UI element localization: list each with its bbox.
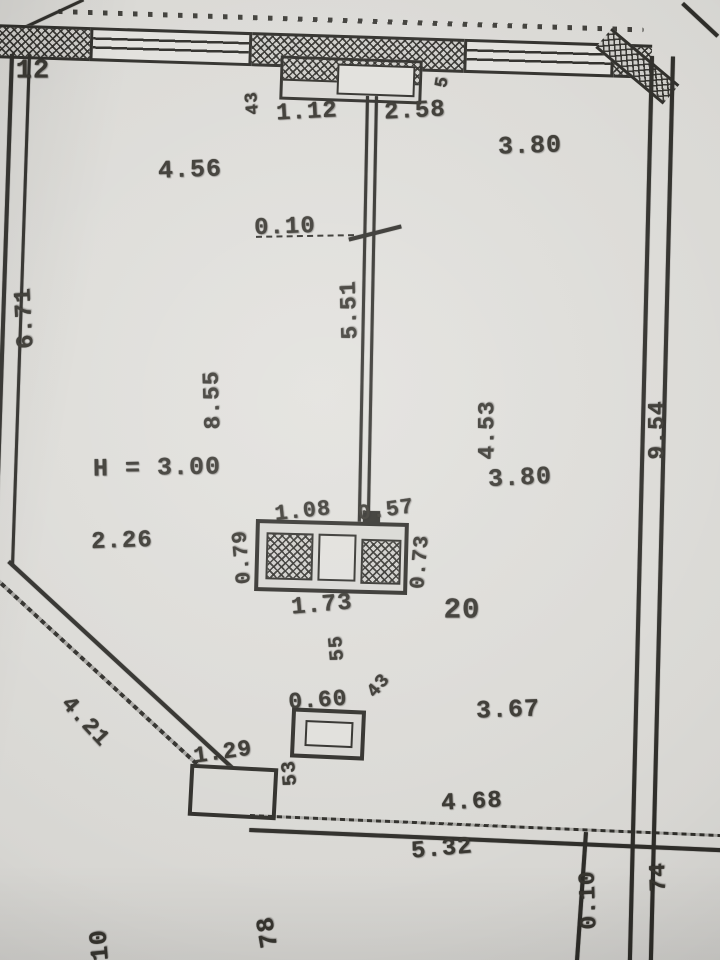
dim-label: 0.79 [230,529,256,585]
dim-label: 3.80 [487,464,552,492]
dim-label: 0.57 [356,496,415,526]
window-symbol [89,27,252,66]
dim-label: 0.10 [254,215,316,241]
floor-plan-photo: 12 1.12 2.58 43 5 4.56 3.80 0.10 5.51 6.… [0,0,720,960]
dim-label: 5 [433,75,453,90]
room-number: 20 [444,596,481,625]
dim-label: 78 [253,914,283,950]
dim-label: 4.21 [56,693,113,752]
ceiling-height-note: H = 3.00 [93,454,221,481]
niche [279,56,422,105]
dim-label: 3.67 [476,696,541,723]
dim-label: 4.53 [477,400,500,459]
wall-line [367,96,378,528]
dim-label: 1.29 [192,737,254,768]
plan-drawing: 12 1.12 2.58 43 5 4.56 3.80 0.10 5.51 6.… [0,0,720,960]
dim-label: 8.55 [200,370,225,430]
dim-label: 1.73 [290,591,353,620]
top-right-diagonal-wall [682,2,719,37]
fixture-cell-open [317,534,356,582]
fixture-cell-hatched [265,532,313,580]
dim-label: 4.56 [158,156,223,183]
dim-label: 43 [243,90,263,115]
wall-line [649,57,675,960]
dim-label: 53 [280,759,302,787]
vent-box-inner [304,720,353,748]
dim-label: 1.08 [274,498,333,526]
dim-label: 2.58 [384,98,447,125]
fixture-block [254,519,409,595]
wall-line [628,56,654,960]
dim-label: 9.54 [647,400,670,459]
dim-label: 74 [647,862,671,892]
dim-label: 2.26 [91,529,153,555]
right-exterior-wall [628,56,676,960]
dim-label: 3.80 [498,132,563,159]
dim-label: 0.60 [288,687,349,714]
window-symbol [463,39,614,78]
dim-label: 12 [16,59,50,86]
vent-box [290,707,366,760]
dim-label: 55 [327,634,349,662]
niche-inner-box [336,64,415,98]
dim-label: 0.73 [408,534,434,590]
wall-step [188,764,279,821]
dim-label: 1.12 [276,99,339,126]
dim-label: 5.32 [410,835,473,864]
fixture-cell-hatched [360,539,401,585]
dim-label: 0.10 [576,870,601,930]
dim-label: 43 [364,670,395,701]
dim-label: 5.51 [337,280,362,340]
dim-label: 10 [86,928,114,960]
dim-label: 4.68 [441,789,504,816]
dim-label: 6.71 [12,287,39,350]
